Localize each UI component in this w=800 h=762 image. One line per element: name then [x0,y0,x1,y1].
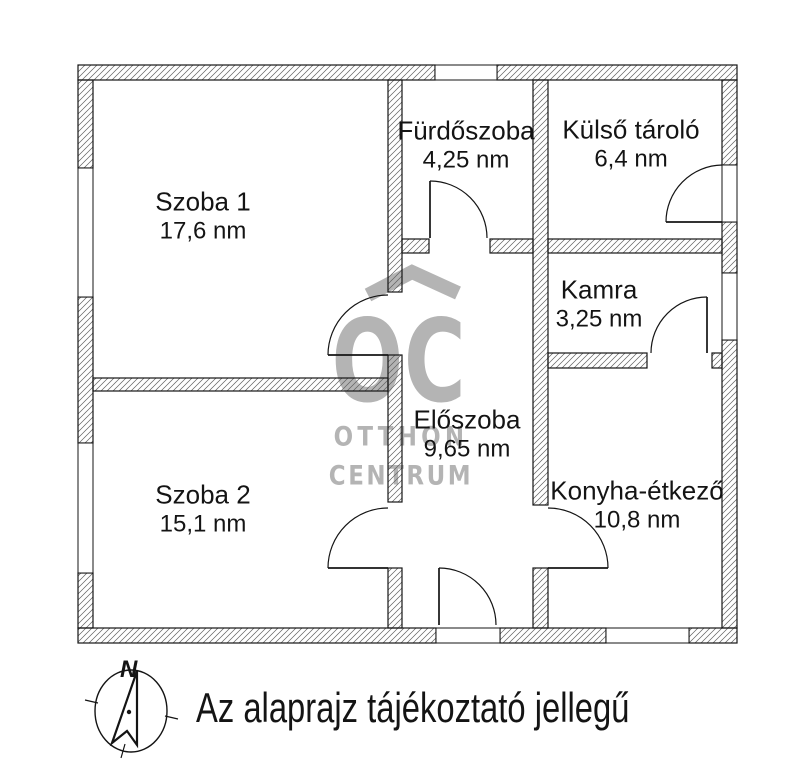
door-kamra [651,297,707,353]
door-entrance [439,568,496,625]
room-name: Szoba 2 [155,480,250,511]
doors [328,165,722,625]
window-top-furdoszoba [435,65,497,80]
room-name: Előszoba [414,405,521,436]
compass-icon: N [85,656,178,758]
room-name: Kamra [556,275,643,306]
room-name: Fürdőszoba [397,116,534,147]
window-left-szoba-1 [78,168,93,297]
room-area: 17,6 nm [155,217,250,245]
room-area: 9,65 nm [414,435,521,463]
room-label-furdoszoba: Fürdőszoba 4,25 nm [397,116,534,175]
door-sill-entrance [436,628,500,643]
room-name: Szoba 1 [155,187,250,218]
room-label-kamra: Kamra 3,25 nm [556,275,643,334]
room-area: 3,25 nm [556,305,643,333]
room-name: Külső tároló [562,115,699,146]
door-furdoszoba [430,181,487,238]
room-area: 4,25 nm [397,146,534,174]
room-label-konyha-etkezo: Konyha-étkező 10,8 nm [550,476,723,535]
door-szoba-1 [328,295,388,355]
room-area: 15,1 nm [155,510,250,538]
room-area: 10,8 nm [550,506,723,534]
room-name: Konyha-étkező [550,476,723,507]
door-szoba-2 [328,508,388,568]
room-label-szoba-2: Szoba 2 15,1 nm [155,480,250,539]
window-right-kamra [722,273,737,340]
disclaimer-caption: Az alaprajz tájékoztató jellegű [196,684,629,732]
floorplan-canvas: OC OTTHON CENTRUM [0,0,800,762]
room-label-szoba-1: Szoba 1 17,6 nm [155,187,250,246]
room-label-eloszoba: Előszoba 9,65 nm [414,405,521,464]
door-kulso-tarolo [666,165,722,222]
door-sill-kulso-tarolo [722,165,737,222]
window-left-szoba-2 [78,443,93,573]
room-area: 6,4 nm [562,145,699,173]
window-bottom-konyha [606,628,689,643]
compass-north-label: N [120,656,138,683]
room-label-kulso-tarolo: Külső tároló 6,4 nm [562,115,699,174]
